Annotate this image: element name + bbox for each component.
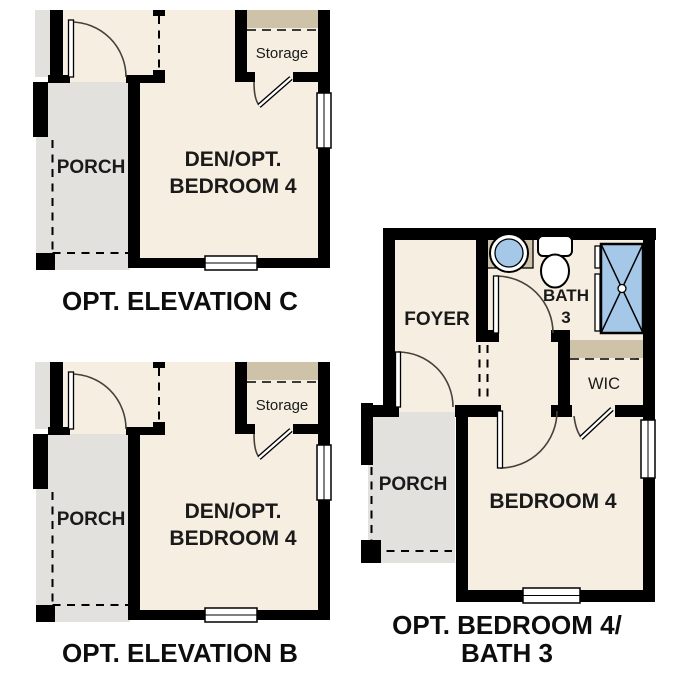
shower-fixture (595, 244, 643, 333)
sink-fixture (490, 234, 528, 272)
window (641, 420, 655, 478)
foyer-label: FOYER (404, 309, 470, 330)
bedroom-label: BEDROOM 4 (489, 490, 617, 513)
bath-label-line1: BATH (543, 286, 589, 305)
floorplan-bedroom4-bath3: FOYER BATH 3 WIC PORCH BEDROOM 4 OPT. BE… (361, 228, 656, 668)
toilet-fixture (538, 236, 572, 288)
floorplan-elevation-b: OPT. ELEVATION B (33, 362, 331, 668)
window (523, 588, 580, 603)
bedroom4-caption-line1: OPT. BEDROOM 4/ (392, 610, 622, 640)
wic-label: WIC (588, 375, 620, 393)
elevation-c-caption: OPT. ELEVATION C (62, 286, 298, 316)
bath-label-line2: 3 (561, 308, 570, 327)
floorplan-elevation-c: OPT. ELEVATION C (33, 10, 331, 316)
floorplan-sheet: PORCH DEN/OPT. BEDROOM 4 Storage OPT. EL… (0, 0, 687, 687)
bedroom4-caption-line2: BATH 3 (461, 638, 553, 668)
porch-label: PORCH (379, 474, 448, 495)
floorplan-canvas: PORCH DEN/OPT. BEDROOM 4 Storage OPT. EL… (0, 0, 687, 687)
wic-shelf (570, 340, 643, 358)
elevation-b-caption: OPT. ELEVATION B (62, 638, 298, 668)
